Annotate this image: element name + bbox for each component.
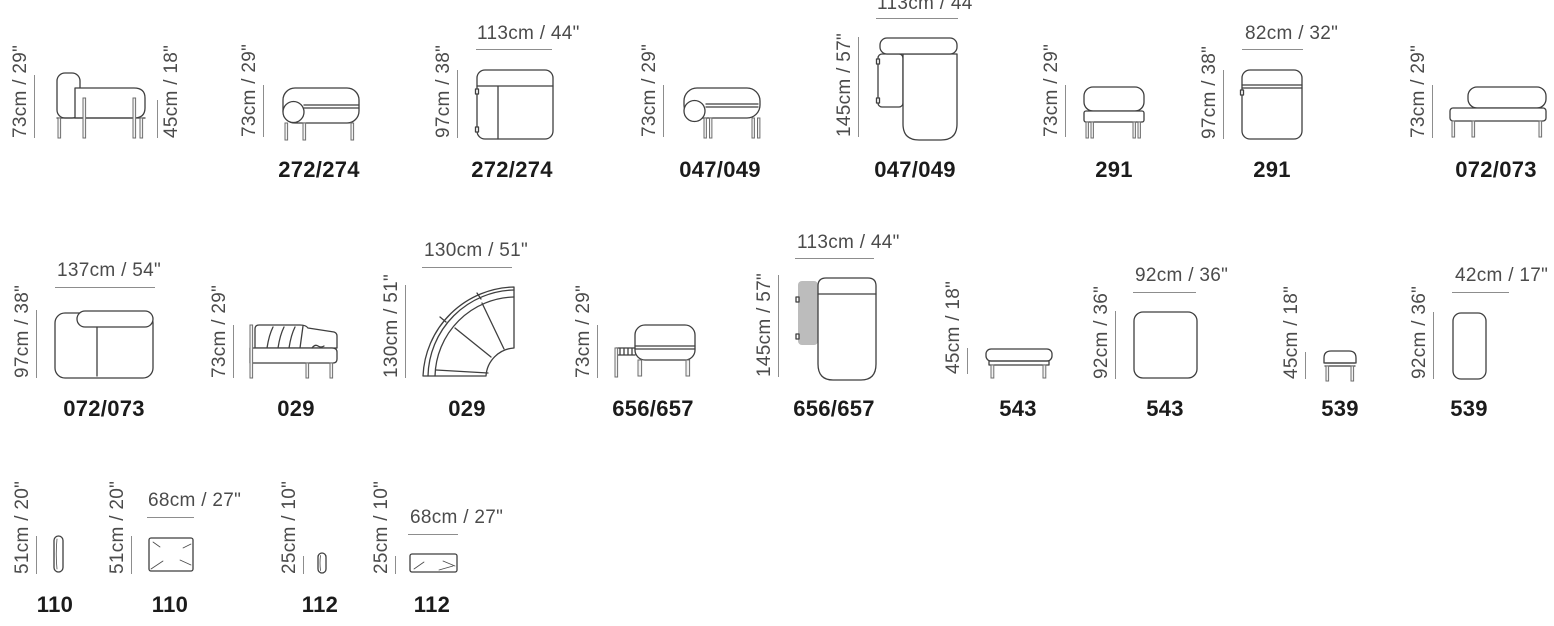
width-dimension-line: [476, 49, 552, 50]
height-dimension-label: 73cm / 29": [571, 218, 597, 378]
height-dimension-line: [233, 325, 234, 378]
small-pillow-side-drawing: [316, 552, 328, 574]
seat-height-dimension-line: [157, 100, 158, 138]
height-dimension-line: [663, 85, 664, 137]
stool-top-drawing: [1452, 312, 1487, 380]
model-number-label: 272/274: [452, 157, 572, 183]
depth-dimension-label: 92cm / 36": [1089, 219, 1115, 379]
height-dimension-line: [263, 85, 264, 137]
open-end-sofa-top-drawing: [53, 310, 155, 380]
width-dimension-label: 130cm / 51": [424, 239, 528, 263]
height-dimension-label: 73cm / 29": [207, 218, 233, 378]
seat-height-dimension-label: 45cm / 18": [159, 0, 185, 138]
depth-dimension-line: [457, 70, 458, 138]
depth-dimension-line: [405, 285, 406, 378]
width-dimension-label: 113cm / 44": [877, 0, 980, 16]
width-dimension-line: [876, 18, 958, 19]
width-dimension-line: [147, 517, 194, 518]
depth-dimension-label: 145cm / 57": [832, 0, 858, 137]
bolster-chaise-top-drawing: [476, 68, 554, 140]
model-number-label: 072/073: [44, 396, 164, 422]
model-number-label: 291: [1212, 157, 1332, 183]
height-dimension-label: 73cm / 29": [637, 0, 663, 137]
depth-dimension-label: 92cm / 36": [1407, 219, 1433, 379]
chair-with-table-front-drawing: [613, 323, 697, 380]
pillow-side-drawing: [52, 535, 66, 573]
width-dimension-line: [55, 287, 155, 288]
chair-top-drawing: [1241, 69, 1303, 140]
depth-dimension-label: 97cm / 38": [1197, 0, 1223, 139]
height-dimension-label: 45cm / 18": [1279, 219, 1305, 379]
table-block-shaded: [798, 281, 818, 345]
depth-dimension-line: [1223, 70, 1224, 139]
width-dimension-line: [1133, 292, 1196, 293]
open-end-sofa-front-drawing: [1448, 86, 1548, 140]
width-dimension-label: 82cm / 32": [1245, 22, 1338, 46]
model-number-label: 539: [1280, 396, 1400, 422]
height-dimension-label: 73cm / 29": [237, 0, 263, 137]
width-dimension-label: 92cm / 36": [1135, 264, 1228, 288]
depth-dimension-line: [778, 275, 779, 377]
width-dimension-label: 137cm / 54": [57, 259, 161, 283]
curved-corner-top-drawing: [420, 286, 516, 378]
armless-chair-front-drawing: [1083, 86, 1145, 140]
height-dimension-label: 25cm / 10": [369, 414, 395, 574]
depth-dimension-label: 130cm / 51": [379, 218, 405, 378]
depth-dimension-line: [1115, 311, 1116, 379]
furniture-dimensions-diagram: 73cm / 29" 45cm / 18" 73cm / 29": [0, 0, 1554, 626]
bolster-chaise-front-drawing: [281, 86, 361, 142]
chaise-top-drawing: [877, 36, 959, 140]
model-number-label: 656/657: [774, 396, 894, 422]
model-number-label: 110: [0, 592, 115, 618]
depth-dimension-label: 97cm / 38": [10, 218, 36, 378]
depth-dimension-line: [858, 37, 859, 137]
height-dimension-label: 45cm / 18": [941, 214, 967, 374]
width-dimension-line: [795, 258, 874, 259]
model-number-label: 110: [110, 592, 230, 618]
bolster-lounger-front-drawing: [682, 86, 762, 140]
model-number-label: 047/049: [855, 157, 975, 183]
height-dimension-line: [1065, 85, 1066, 137]
model-number-label: 112: [372, 592, 492, 618]
model-number-label: 112: [260, 592, 380, 618]
height-dimension-line: [131, 536, 132, 574]
height-dimension-label: 73cm / 29": [1039, 0, 1065, 137]
chaise-with-table-top-drawing: [795, 276, 879, 382]
height-dimension-label: 73cm / 29": [1406, 0, 1432, 138]
height-dimension-label: 25cm / 10": [277, 414, 303, 574]
model-number-label: 029: [407, 396, 527, 422]
model-number-label: 543: [958, 396, 1078, 422]
model-number-label: 291: [1054, 157, 1174, 183]
height-dimension-label: 51cm / 20": [10, 414, 36, 574]
depth-dimension-line: [36, 310, 37, 378]
height-dimension-line: [303, 556, 304, 574]
model-number-label: 543: [1105, 396, 1225, 422]
model-number-label: 539: [1409, 396, 1529, 422]
height-dimension-label: 51cm / 20": [105, 414, 131, 574]
height-dimension-line: [1305, 352, 1306, 379]
ottoman-top-drawing: [1133, 311, 1198, 379]
model-number-label: 272/274: [259, 157, 379, 183]
pillow-front-drawing: [147, 536, 195, 574]
height-dimension-line: [1432, 85, 1433, 138]
sofa-side-view-drawing: [50, 63, 150, 141]
height-dimension-line: [36, 536, 37, 574]
width-dimension-line: [408, 534, 458, 535]
model-number-label: 072/073: [1436, 157, 1554, 183]
bench-front-drawing: [985, 348, 1053, 379]
width-dimension-label: 68cm / 27": [410, 506, 503, 530]
width-dimension-label: 68cm / 27": [148, 489, 241, 513]
width-dimension-label: 113cm / 44": [477, 22, 580, 46]
width-dimension-line: [1242, 49, 1303, 50]
width-dimension-label: 113cm / 44": [797, 231, 900, 255]
width-dimension-label: 42cm / 17": [1455, 264, 1548, 288]
height-dimension-line: [395, 556, 396, 574]
depth-dimension-label: 145cm / 57": [752, 217, 778, 377]
depth-dimension-label: 97cm / 38": [431, 0, 457, 138]
width-dimension-line: [422, 267, 512, 268]
curved-sofa-front-drawing: [248, 323, 343, 380]
model-number-label: 047/049: [660, 157, 780, 183]
height-dimension-line: [34, 75, 35, 138]
depth-dimension-line: [1433, 312, 1434, 379]
model-number-label: 656/657: [593, 396, 713, 422]
lumbar-pillow-front-drawing: [409, 553, 459, 574]
height-dimension-line: [597, 325, 598, 378]
height-dimension-label: 73cm / 29": [8, 0, 34, 138]
width-dimension-line: [1452, 292, 1509, 293]
stool-front-drawing: [1321, 350, 1359, 382]
height-dimension-line: [967, 348, 968, 374]
